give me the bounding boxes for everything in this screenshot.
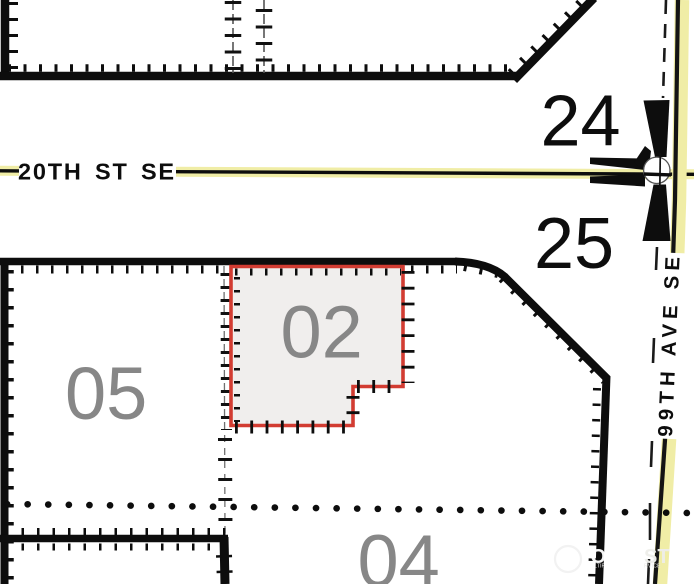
- svg-text:02: 02: [281, 291, 363, 374]
- svg-text:24: 24: [541, 82, 621, 162]
- svg-text:ULTIP: ULTIP: [590, 564, 606, 570]
- svg-text:20TH ST SE: 20TH ST SE: [18, 159, 176, 185]
- svg-text:RVICE: RVICE: [644, 564, 661, 570]
- svg-text:25: 25: [534, 204, 614, 284]
- svg-text:04: 04: [358, 520, 440, 584]
- svg-text:05: 05: [65, 352, 147, 435]
